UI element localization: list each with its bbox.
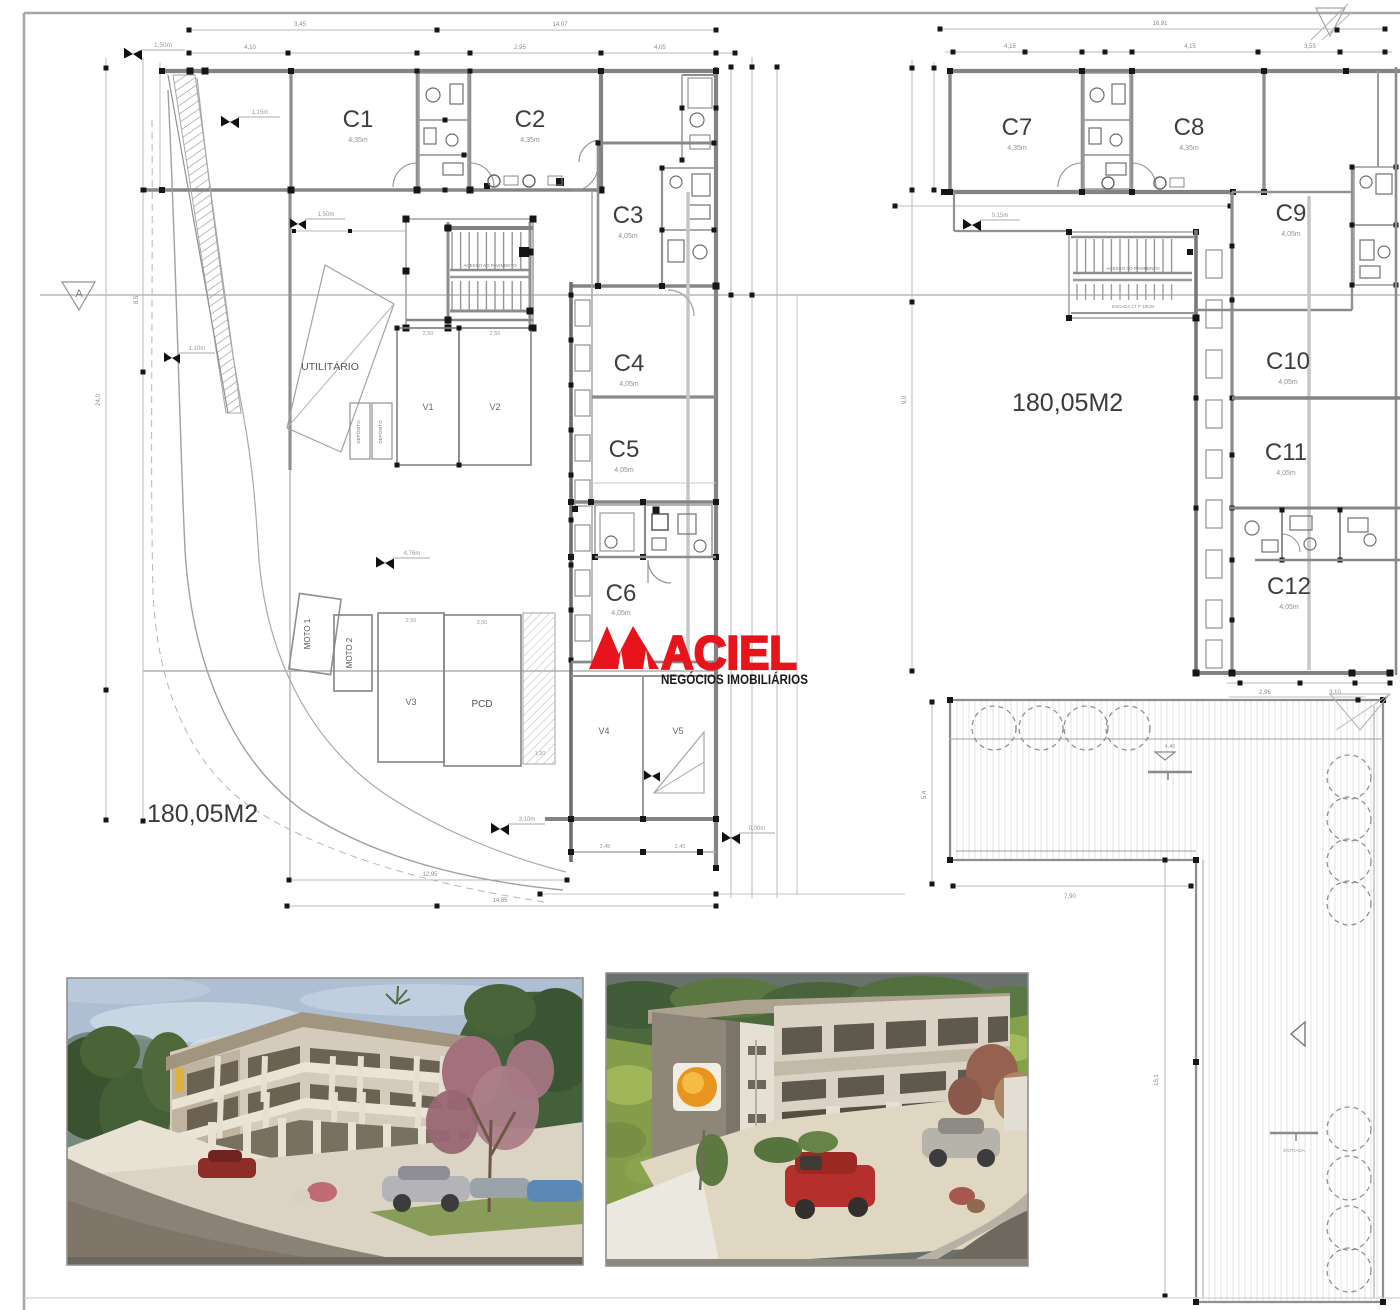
svg-text:C7: C7 <box>1002 114 1033 141</box>
svg-text:1,50m: 1,50m <box>154 42 172 49</box>
svg-text:4,05m: 4,05m <box>1279 604 1299 611</box>
svg-text:C11: C11 <box>1265 439 1307 466</box>
svg-text:4,15: 4,15 <box>1184 44 1196 50</box>
svg-text:16,91: 16,91 <box>1152 21 1168 27</box>
svg-text:14,85: 14,85 <box>492 898 508 904</box>
svg-text:2,50: 2,50 <box>406 618 417 624</box>
svg-text:3,50: 3,50 <box>477 620 488 626</box>
svg-text:PCD: PCD <box>471 699 492 710</box>
svg-text:C2: C2 <box>515 106 546 133</box>
svg-text:2,45: 2,45 <box>675 844 686 850</box>
svg-text:NEGÓCIOS IMOBILIÁRIOS: NEGÓCIOS IMOBILIÁRIOS <box>661 672 808 687</box>
svg-text:4,05m: 4,05m <box>614 467 634 474</box>
svg-text:4,76m: 4,76m <box>404 551 421 557</box>
svg-text:4,05m: 4,05m <box>1278 379 1298 386</box>
svg-text:3,10m: 3,10m <box>519 817 536 823</box>
svg-text:2,45: 2,45 <box>600 844 611 850</box>
svg-text:UTILITÁRIO: UTILITÁRIO <box>301 360 359 373</box>
svg-text:3,55: 3,55 <box>1304 44 1316 50</box>
svg-text:V1: V1 <box>422 402 433 412</box>
svg-text:4,35m: 4,35m <box>1179 145 1199 152</box>
svg-text:0,00m: 0,00m <box>749 826 766 832</box>
svg-text:ESCADA 17 P 18CM: ESCADA 17 P 18CM <box>1112 304 1154 309</box>
svg-text:14,07: 14,07 <box>552 22 568 28</box>
svg-text:3,45: 3,45 <box>294 22 306 28</box>
svg-text:4,10: 4,10 <box>244 45 256 51</box>
svg-text:4,35m: 4,35m <box>520 137 540 144</box>
svg-text:C4: C4 <box>614 350 645 377</box>
svg-text:V4: V4 <box>598 726 609 736</box>
svg-text:C8: C8 <box>1174 114 1205 141</box>
svg-text:C1: C1 <box>343 106 374 133</box>
svg-text:1,50m: 1,50m <box>318 212 335 218</box>
svg-text:4,05m: 4,05m <box>619 381 639 388</box>
svg-text:180,05M2: 180,05M2 <box>147 800 258 828</box>
svg-text:180,05M2: 180,05M2 <box>1012 389 1123 417</box>
svg-text:4,40: 4,40 <box>1165 744 1176 750</box>
svg-text:2,96: 2,96 <box>1259 690 1271 696</box>
svg-text:DEPÓSITO: DEPÓSITO <box>377 420 383 444</box>
svg-text:4,05m: 4,05m <box>1276 470 1296 477</box>
svg-text:9,0: 9,0 <box>902 395 908 404</box>
svg-text:2,50: 2,50 <box>490 331 501 337</box>
svg-text:8,5: 8,5 <box>134 295 140 304</box>
svg-text:C6: C6 <box>606 580 637 607</box>
svg-text:ENTRADA: ENTRADA <box>1283 1148 1305 1153</box>
svg-text:C10: C10 <box>1266 348 1310 375</box>
svg-text:2,50: 2,50 <box>423 331 434 337</box>
svg-text:7,90: 7,90 <box>1064 894 1076 900</box>
svg-text:V2: V2 <box>489 402 500 412</box>
svg-text:V3: V3 <box>405 697 416 707</box>
svg-text:A: A <box>75 288 83 300</box>
svg-text:15,1: 15,1 <box>1154 1074 1160 1086</box>
svg-text:ACESSO AO PAVIMENTO: ACESSO AO PAVIMENTO <box>1106 266 1160 271</box>
svg-text:4,05m: 4,05m <box>611 610 631 617</box>
svg-text:C12: C12 <box>1267 573 1311 600</box>
svg-text:4,35m: 4,35m <box>1007 145 1027 152</box>
svg-text:4,15: 4,15 <box>1004 44 1016 50</box>
svg-text:2,95: 2,95 <box>514 45 526 51</box>
svg-text:1,10m: 1,10m <box>189 346 206 352</box>
svg-text:4,35m: 4,35m <box>348 137 368 144</box>
svg-text:1,20: 1,20 <box>535 751 546 757</box>
svg-text:V5: V5 <box>672 726 683 736</box>
svg-text:DEPÓSITO: DEPÓSITO <box>355 420 361 444</box>
svg-text:4,05m: 4,05m <box>618 233 638 240</box>
svg-text:0,15m: 0,15m <box>992 213 1009 219</box>
svg-text:24,0: 24,0 <box>96 394 102 406</box>
svg-text:C5: C5 <box>609 436 640 463</box>
svg-text:C9: C9 <box>1276 200 1307 227</box>
svg-text:5,4: 5,4 <box>922 790 928 799</box>
svg-text:MOTO 2: MOTO 2 <box>345 637 354 668</box>
svg-text:C3: C3 <box>613 202 644 229</box>
svg-text:MOTO 1: MOTO 1 <box>303 618 312 649</box>
svg-text:ACESSO AO PAVIMENTO: ACESSO AO PAVIMENTO <box>463 263 517 268</box>
svg-text:12,95: 12,95 <box>422 872 438 878</box>
svg-text:4,05m: 4,05m <box>1281 231 1301 238</box>
svg-text:4,05: 4,05 <box>654 45 666 51</box>
svg-text:1,15m: 1,15m <box>252 110 269 116</box>
